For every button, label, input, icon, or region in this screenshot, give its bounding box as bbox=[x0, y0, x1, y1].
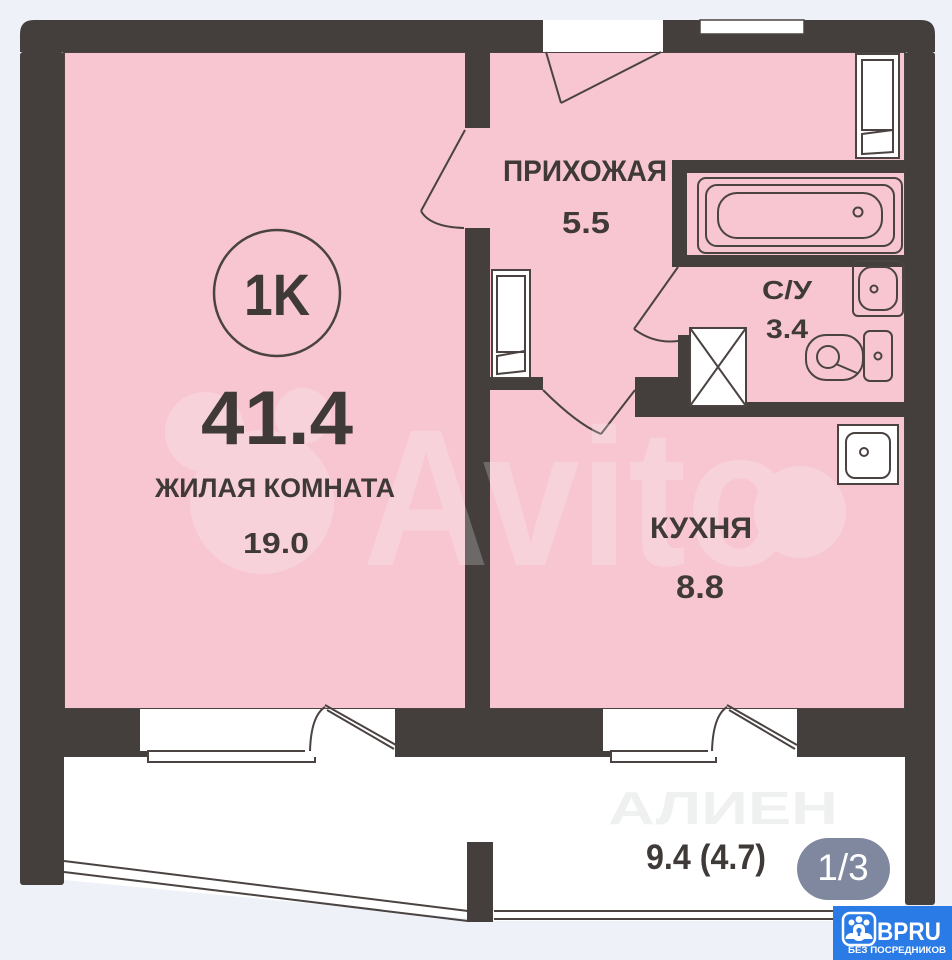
kitchen-window-sill bbox=[611, 751, 716, 762]
right-wall bbox=[905, 52, 935, 905]
total-area-label: 41.4 bbox=[201, 376, 353, 461]
su-label: С/У bbox=[762, 275, 813, 305]
entrance-opening bbox=[543, 20, 663, 52]
living-room-area-label: 19.0 bbox=[243, 528, 309, 560]
divider-wall-top bbox=[465, 52, 490, 128]
faint-watermark-text: АЛИЕН bbox=[608, 782, 838, 834]
hallway-area-label: 5.5 bbox=[562, 205, 610, 240]
bpru-brand-text: BPRU bbox=[877, 918, 941, 946]
kitchen-balcony-doorway bbox=[708, 709, 797, 757]
balcony-divider-wall bbox=[467, 842, 493, 922]
kitchen-sink-icon bbox=[838, 425, 898, 484]
photo-counter-badge: 1/3 bbox=[797, 838, 890, 900]
type-badge-label: 1K bbox=[244, 263, 310, 328]
living-window-icon bbox=[140, 709, 305, 751]
entry-wardrobe-icon bbox=[856, 54, 899, 158]
floorplan-drawing: Avito АЛИЕН 1K 41.4 ЖИЛАЯ КОМНАТА 19.0 П… bbox=[0, 0, 952, 960]
bpru-tagline: БЕЗ ПОСРЕДНИКОВ bbox=[848, 945, 946, 956]
avito-watermark-text: Avito bbox=[363, 389, 793, 607]
bpru-logo: BPRU БЕЗ ПОСРЕДНИКОВ bbox=[833, 906, 952, 960]
hallway-label: ПРИХОЖАЯ bbox=[503, 155, 667, 188]
kitchen-area-label: 8.8 bbox=[676, 569, 724, 605]
balcony-area-label: 9.4 (4.7) bbox=[646, 838, 766, 877]
left-wall bbox=[20, 52, 64, 885]
photo-counter-label: 1/3 bbox=[817, 847, 868, 888]
living-balcony-doorway bbox=[305, 709, 395, 757]
living-room-label: ЖИЛАЯ КОМНАТА bbox=[154, 473, 395, 503]
kitchen-label: КУХНЯ bbox=[650, 512, 752, 545]
floorplan-photo[interactable]: Avito АЛИЕН 1K 41.4 ЖИЛАЯ КОМНАТА 19.0 П… bbox=[0, 0, 952, 960]
bathroom-top-wall bbox=[672, 160, 905, 173]
hallway-wardrobe-icon bbox=[492, 270, 530, 378]
kitchen-window-icon bbox=[603, 709, 708, 751]
bathroom-left-wall bbox=[672, 160, 687, 267]
living-window-sill bbox=[148, 751, 315, 762]
top-window-icon bbox=[700, 20, 804, 34]
su-area-label: 3.4 bbox=[766, 314, 808, 344]
